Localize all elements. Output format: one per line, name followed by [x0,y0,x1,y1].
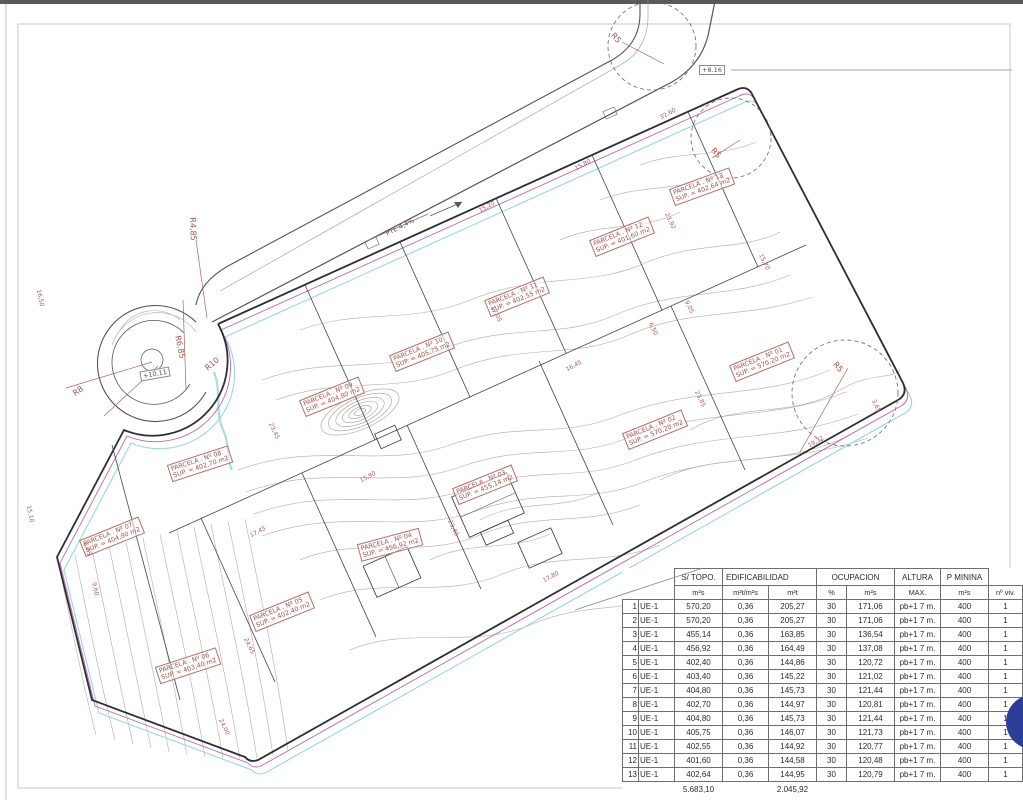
table-row: 10UE-1405,750,36146,0730121,73pb+1 7 m.4… [623,726,1023,740]
col-s-topo: S/ TOPO. [675,569,723,586]
table-cell: 30 [817,614,847,628]
house-footprints [363,425,562,597]
table-corner2 [623,586,675,600]
table-cell: 146,07 [769,726,817,740]
table-cell: 400 [941,628,989,642]
table-cell: pb+1 7 m. [895,684,941,698]
table-cell: 400 [941,642,989,656]
table-cell: 401,60 [675,754,723,768]
table-row: 7UE-1404,800,36145,7330121,44pb+1 7 m.40… [623,684,1023,698]
table-cell: 1 [989,656,1023,670]
table-cell: pb+1 7 m. [895,754,941,768]
table-row: 9UE-1404,800,36145,7330121,44pb+1 7 m.40… [623,712,1023,726]
table-cell: 400 [941,740,989,754]
table-cell: 30 [817,712,847,726]
table-cell: 402,55 [675,740,723,754]
table-cell: 120,48 [847,754,895,768]
table-cell: 0,36 [723,642,769,656]
table-row: 5UE-1402,400,36144,8630120,72pb+1 7 m.40… [623,656,1023,670]
table-cell: 163,85 [769,628,817,642]
table-row: 1UE-1570,200,36205,2730171,06pb+1 7 m.40… [623,600,1023,614]
table-cell: 405,75 [675,726,723,740]
table-cell: 137,08 [847,642,895,656]
total-edificabilidad: 2.045,92 [769,782,817,798]
table-cell: 404,80 [675,712,723,726]
table-cell: 144,92 [769,740,817,754]
table-cell: 30 [817,600,847,614]
table-cell: 402,40 [675,656,723,670]
table-cell: 455,14 [675,628,723,642]
table-row: 2UE-1570,200,36205,2730171,06pb+1 7 m.40… [623,614,1023,628]
table-cell: 456,92 [675,642,723,656]
table-cell: 121,44 [847,712,895,726]
table-cell: 121,73 [847,726,895,740]
table-cell: 1 [989,642,1023,656]
table-cell: 144,58 [769,754,817,768]
table-corner [623,569,675,586]
table-cell: 205,27 [769,600,817,614]
table-cell: 164,49 [769,642,817,656]
table-cell: 1 [623,600,639,614]
table-cell: 4 [623,642,639,656]
table-cell: 144,86 [769,656,817,670]
table-cell: 400 [941,726,989,740]
unit-max: MAX. [895,586,941,600]
table-cell: pb+1 7 m. [895,656,941,670]
table-cell: UE-1 [639,670,675,684]
table-cell: 1 [989,600,1023,614]
table-cell: 0,36 [723,768,769,782]
table-cell: 1 [989,628,1023,642]
table-cell: 400 [941,614,989,628]
unit-ratio: m²t/m²s [723,586,769,600]
table-cell: 30 [817,656,847,670]
unit-pct: % [817,586,847,600]
table-cell: UE-1 [639,642,675,656]
table-cell: 0,36 [723,712,769,726]
zoning-table: S/ TOPO. EDIFICABILIDAD OCUPACION ALTURA… [622,568,1023,797]
table-cell: 145,73 [769,712,817,726]
table-row: 13UE-1402,640,36144,9530120,79pb+1 7 m.4… [623,768,1023,782]
table-cell: 171,06 [847,600,895,614]
table-cell: 9 [623,712,639,726]
table-row: 4UE-1456,920,36164,4930137,08pb+1 7 m.40… [623,642,1023,656]
table-cell: 400 [941,698,989,712]
table-cell: 1 [989,614,1023,628]
table-cell: UE-1 [639,726,675,740]
table-cell: 30 [817,768,847,782]
table-cell: 400 [941,656,989,670]
table-cell: 121,02 [847,670,895,684]
culdesac-bulb [97,306,206,422]
table-cell: 120,77 [847,740,895,754]
table-cell: 30 [817,628,847,642]
elevation-marker-road: +8.16 [699,65,725,75]
table-cell: 120,81 [847,698,895,712]
table-cell: pb+1 7 m. [895,670,941,684]
col-p-minina: P MININA [941,569,989,586]
table-cell: UE-1 [639,754,675,768]
table-cell: 400 [941,712,989,726]
table-body: 1UE-1570,200,36205,2730171,06pb+1 7 m.40… [623,600,1023,782]
table-cell: 30 [817,642,847,656]
table-cell: pb+1 7 m. [895,740,941,754]
table-cell: 0,36 [723,726,769,740]
table-cell: 0,36 [723,628,769,642]
table-cell: pb+1 7 m. [895,600,941,614]
table-cell: pb+1 7 m. [895,698,941,712]
total-s-topo: 5.683,10 [675,782,723,798]
table-row: 6UE-1403,400,36145,2230121,02pb+1 7 m.40… [623,670,1023,684]
table-cell: 12 [623,754,639,768]
table-cell: 1 [989,670,1023,684]
table-cell: pb+1 7 m. [895,712,941,726]
table-cell: UE-1 [639,614,675,628]
table-cell: 0,36 [723,656,769,670]
table-cell: 570,20 [675,600,723,614]
table-cell: pb+1 7 m. [895,768,941,782]
table-cell: 400 [941,754,989,768]
table-cell: pb+1 7 m. [895,726,941,740]
col-altura: ALTURA [895,569,941,586]
annotation-leaders [66,42,848,452]
table-cell: 144,95 [769,768,817,782]
table-cell: 404,80 [675,684,723,698]
table-cell: 1 [989,684,1023,698]
table-cell: UE-1 [639,656,675,670]
table-cell: 13 [623,768,639,782]
table-cell: 30 [817,726,847,740]
table-cell: 400 [941,670,989,684]
site-plan-sheet: S/ TOPO. EDIFICABILIDAD OCUPACION ALTURA… [0,0,1023,800]
table-cell: 0,36 [723,740,769,754]
unit-p-min-m2: m²s [941,586,989,600]
table-cell: 8 [623,698,639,712]
table-cell: 7 [623,684,639,698]
table-cell: 136,54 [847,628,895,642]
table-cell: 402,64 [675,768,723,782]
table-cell: 205,27 [769,614,817,628]
table-row: 12UE-1401,600,36144,5830120,48pb+1 7 m.4… [623,754,1023,768]
table-cell: UE-1 [639,628,675,642]
table-cell: 30 [817,684,847,698]
unit-edif-m2: m²t [769,586,817,600]
table-cell: 1 [989,754,1023,768]
totals-row: 5.683,10 2.045,92 [623,782,1023,798]
table-cell: 121,44 [847,684,895,698]
table-cell: 144,97 [769,698,817,712]
unit-ocup-m2: m²s [847,586,895,600]
table-cell: UE-1 [639,712,675,726]
table-row: 11UE-1402,550,36144,9230120,77pb+1 7 m.4… [623,740,1023,754]
table-cell: 171,06 [847,614,895,628]
table-cell: 0,36 [723,754,769,768]
table-cell: UE-1 [639,600,675,614]
table-cell: pb+1 7 m. [895,628,941,642]
table-cell: 0,36 [723,670,769,684]
table-row: 8UE-1402,700,36144,9730120,81pb+1 7 m.40… [623,698,1023,712]
road [196,0,1012,322]
table-cell: 403,40 [675,670,723,684]
table-cell: 400 [941,600,989,614]
table-cell: UE-1 [639,740,675,754]
table-cell: 400 [941,684,989,698]
table-cell: 30 [817,670,847,684]
table-cell: 402,70 [675,698,723,712]
table-cell: 6 [623,670,639,684]
table-cell: 570,20 [675,614,723,628]
col-edificabilidad: EDIFICABILIDAD [723,569,817,586]
table-cell: 120,79 [847,768,895,782]
table-cell: 11 [623,740,639,754]
table-cell: UE-1 [639,698,675,712]
table-cell: 3 [623,628,639,642]
table-cell: 30 [817,698,847,712]
unit-s-topo: m²s [675,586,723,600]
radius-label-r485: R4,85 [188,217,198,241]
table-cell: 30 [817,740,847,754]
table-cell: 0,36 [723,614,769,628]
table-cell: 145,22 [769,670,817,684]
table-cell: 145,73 [769,684,817,698]
table-cell: pb+1 7 m. [895,642,941,656]
table-cell: 30 [817,754,847,768]
table-row: 3UE-1455,140,36163,8530136,54pb+1 7 m.40… [623,628,1023,642]
table-cell: 120,72 [847,656,895,670]
unit-nviv: nº viv. [989,586,1023,600]
table-cell: 0,36 [723,698,769,712]
col-nviv-spacer [989,569,1023,586]
table-cell: 0,36 [723,600,769,614]
table-cell: UE-1 [639,684,675,698]
table-cell: 1 [989,768,1023,782]
table-cell: 0,36 [723,684,769,698]
table-cell: UE-1 [639,768,675,782]
table-cell: pb+1 7 m. [895,614,941,628]
table-cell: 5 [623,656,639,670]
table-cell: 400 [941,768,989,782]
col-ocupacion: OCUPACION [817,569,895,586]
table-cell: 2 [623,614,639,628]
table-cell: 10 [623,726,639,740]
